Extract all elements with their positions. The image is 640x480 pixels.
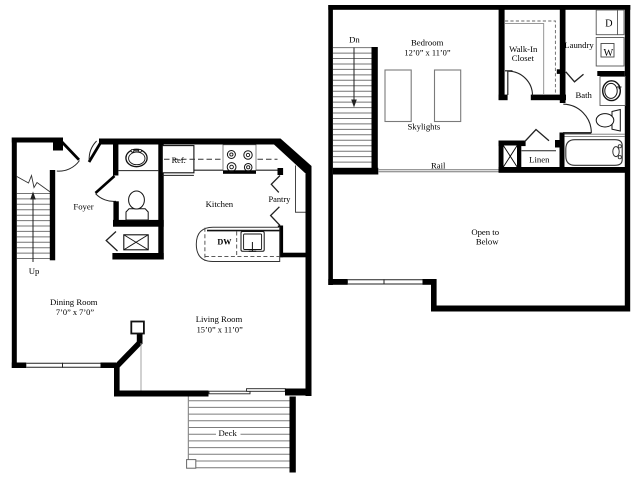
svg-text:D: D bbox=[605, 19, 613, 30]
svg-text:7’0” x 7’0”: 7’0” x 7’0” bbox=[56, 308, 94, 317]
svg-text:Dn: Dn bbox=[349, 34, 360, 44]
svg-text:Laundry: Laundry bbox=[564, 40, 594, 50]
svg-text:Pantry: Pantry bbox=[268, 195, 291, 204]
svg-text:Dining Room: Dining Room bbox=[50, 297, 98, 307]
svg-text:Bedroom: Bedroom bbox=[411, 38, 444, 48]
svg-text:DW: DW bbox=[217, 238, 232, 247]
svg-text:Below: Below bbox=[476, 236, 499, 246]
svg-text:Living Room: Living Room bbox=[196, 314, 243, 324]
svg-text:12’0” x 11’0”: 12’0” x 11’0” bbox=[404, 49, 450, 58]
svg-text:Deck: Deck bbox=[219, 428, 238, 438]
svg-text:Linen: Linen bbox=[529, 154, 550, 164]
svg-text:Ref.: Ref. bbox=[172, 156, 186, 165]
svg-text:Rail: Rail bbox=[431, 160, 446, 170]
svg-text:Skylights: Skylights bbox=[407, 122, 440, 132]
svg-text:Kitchen: Kitchen bbox=[206, 199, 234, 209]
svg-text:W: W bbox=[603, 48, 613, 59]
svg-text:Up: Up bbox=[29, 266, 40, 276]
svg-text:Foyer: Foyer bbox=[73, 201, 93, 211]
svg-text:Bath: Bath bbox=[575, 90, 592, 100]
svg-text:Closet: Closet bbox=[512, 53, 535, 63]
svg-text:15’0” x 11’0”: 15’0” x 11’0” bbox=[197, 326, 243, 335]
